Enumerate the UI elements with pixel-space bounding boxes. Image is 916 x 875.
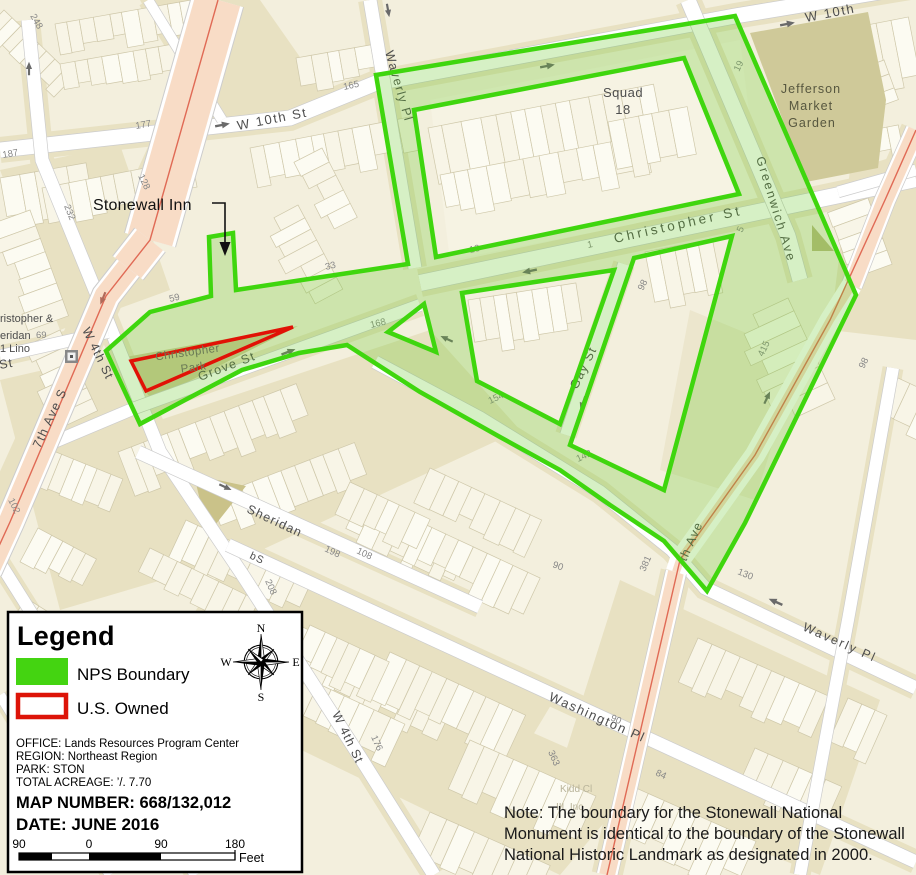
- svg-text:St: St: [0, 356, 14, 372]
- svg-text:E: E: [292, 655, 299, 669]
- svg-text:S: S: [258, 690, 265, 704]
- svg-text:1 Lino: 1 Lino: [0, 343, 30, 355]
- svg-text:Market: Market: [789, 99, 833, 113]
- svg-text:NPS Boundary: NPS Boundary: [77, 665, 190, 684]
- svg-text:18: 18: [615, 102, 630, 117]
- svg-text:U.S. Owned: U.S. Owned: [77, 699, 169, 718]
- svg-text:MAP NUMBER: 668/132,012: MAP NUMBER: 668/132,012: [16, 794, 231, 812]
- svg-text:Note: The boundary for the Sto: Note: The boundary for the Stonewall Nat…: [504, 804, 842, 822]
- svg-text:OFFICE: Lands Resources Progra: OFFICE: Lands Resources Program Center: [16, 738, 239, 750]
- svg-text:REGION: Northeast Region: REGION: Northeast Region: [16, 751, 157, 763]
- svg-text:TOTAL ACREAGE: ’/. 7.70: TOTAL ACREAGE: ’/. 7.70: [16, 777, 151, 789]
- svg-text:Jefferson: Jefferson: [781, 82, 841, 96]
- svg-text:Garden: Garden: [788, 116, 836, 130]
- svg-text:Monument is identical to the b: Monument is identical to the boundary of…: [504, 825, 905, 843]
- svg-text:W: W: [220, 655, 232, 669]
- svg-text:Kidd Cl: Kidd Cl: [560, 784, 592, 795]
- svg-text:DATE: JUNE 2016: DATE: JUNE 2016: [16, 815, 159, 834]
- svg-text:90: 90: [154, 837, 168, 851]
- svg-text:Legend: Legend: [17, 621, 115, 651]
- svg-text:N: N: [257, 621, 266, 635]
- svg-text:Squad: Squad: [603, 85, 643, 100]
- svg-text:National Historic Landmark as: National Historic Landmark as designated…: [504, 846, 873, 864]
- svg-text:PARK: STON: PARK: STON: [16, 764, 85, 776]
- svg-text:ristopher &: ristopher &: [0, 313, 54, 325]
- svg-text:Feet: Feet: [239, 851, 265, 865]
- svg-text:eridan: eridan: [0, 330, 31, 342]
- svg-text:Stonewall Inn: Stonewall Inn: [93, 197, 192, 214]
- svg-text:180: 180: [225, 837, 245, 851]
- svg-text:0: 0: [86, 837, 93, 851]
- svg-text:69: 69: [36, 330, 47, 341]
- svg-text:90: 90: [12, 837, 26, 851]
